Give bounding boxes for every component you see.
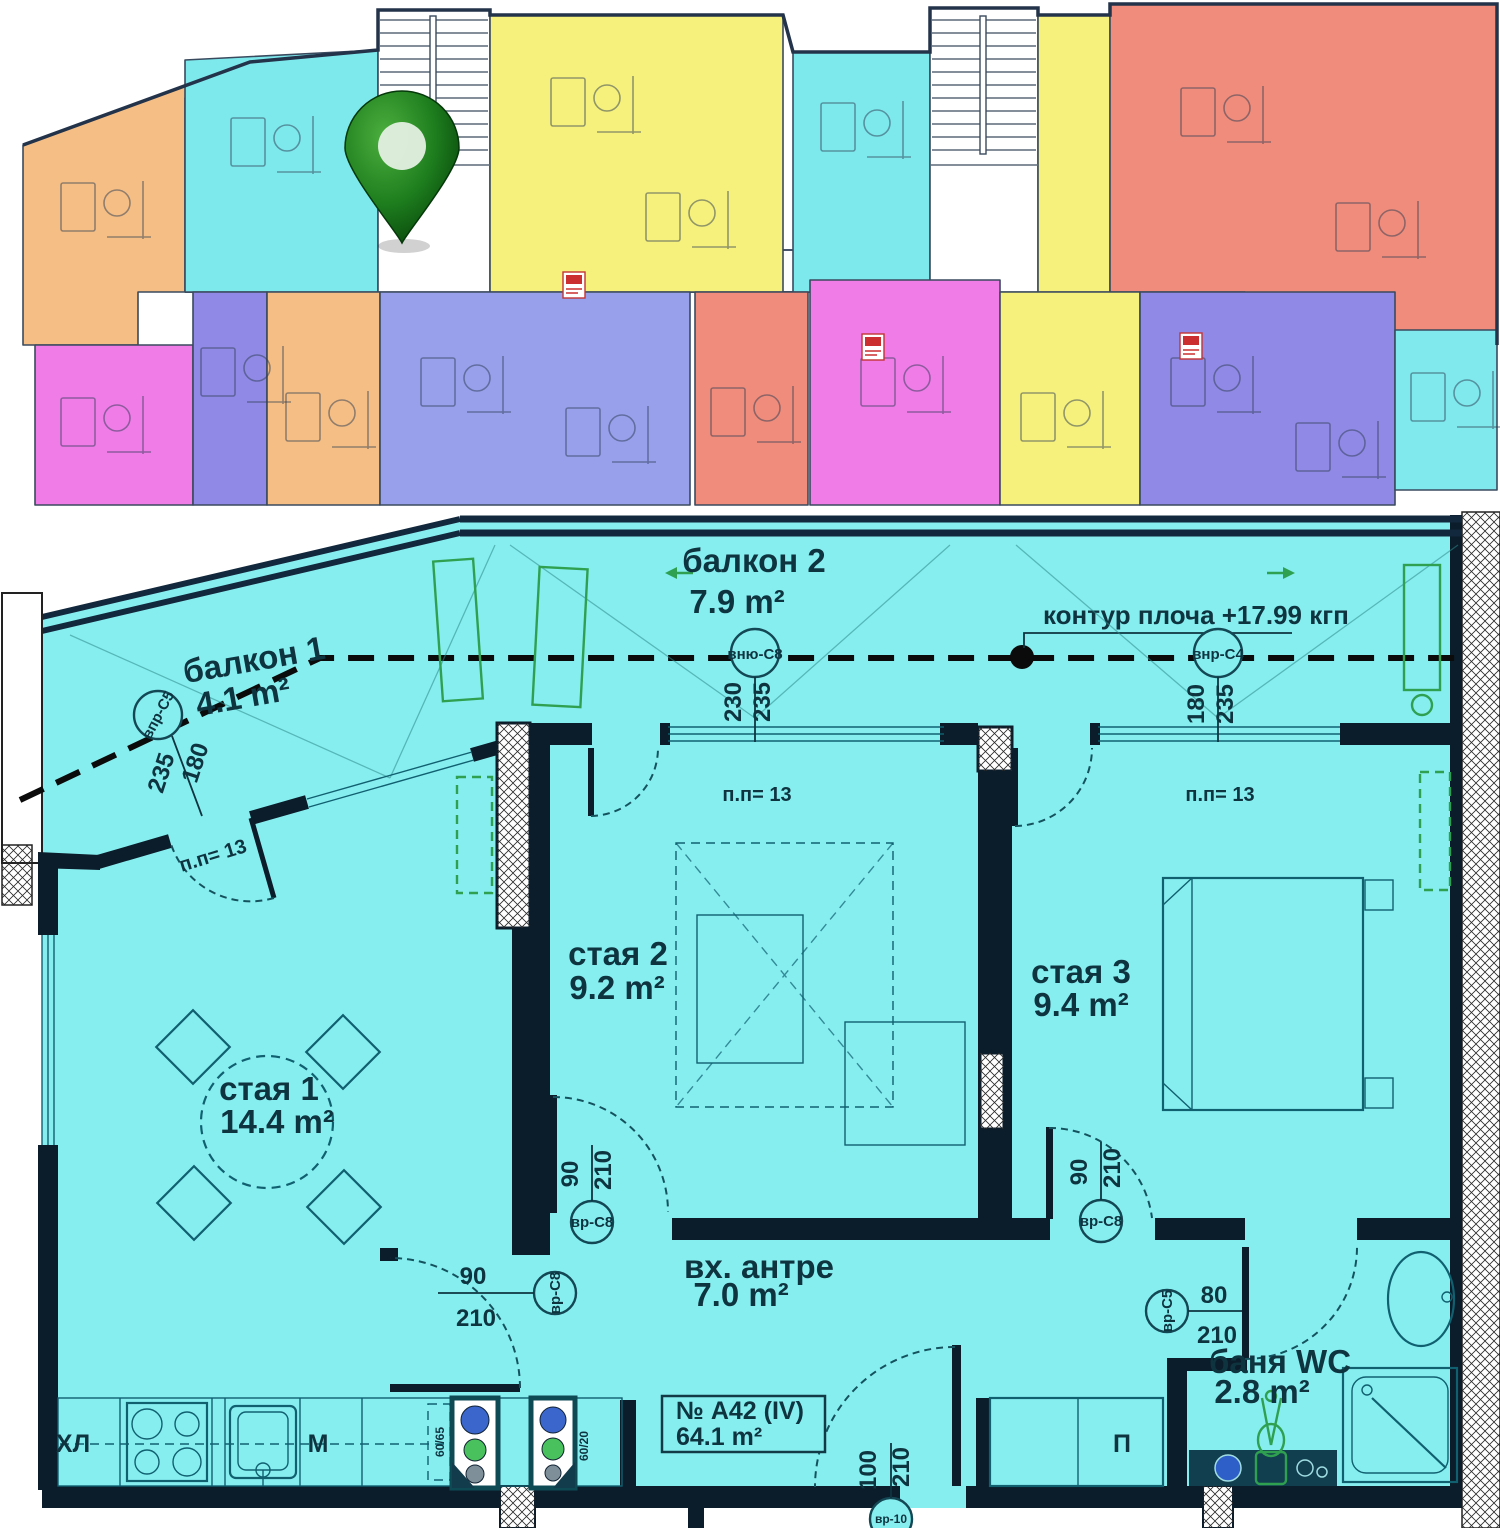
door-leaf — [1012, 748, 1018, 826]
svg-text:внр-С4: внр-С4 — [1192, 646, 1244, 663]
vanity-counter — [1189, 1450, 1337, 1486]
door-leaf — [588, 748, 594, 816]
entrance-door-leaf — [952, 1345, 961, 1486]
label-counter: М — [308, 1430, 329, 1458]
area-bath: 2.8 m² — [1214, 1373, 1309, 1410]
area-hall: 7.0 m² — [693, 1276, 788, 1313]
area-room1: 14.4 m² — [220, 1103, 334, 1140]
unit-orange-bottom — [267, 292, 380, 505]
label-balcony2: балкон 2 — [682, 542, 825, 579]
label-room2: стая 2 — [568, 935, 668, 972]
pp-note: п.п= 13 — [722, 784, 791, 806]
svg-text:90: 90 — [460, 1263, 487, 1290]
unit-cyan-right — [793, 52, 930, 292]
door-leaf — [1046, 1127, 1053, 1219]
apartment-number-box: № А42 (IV) 64.1 m² — [662, 1396, 825, 1452]
svg-text:вр-С5: вр-С5 — [1159, 1290, 1176, 1333]
svg-text:вр-С8: вр-С8 — [547, 1272, 564, 1315]
building-overview — [0, 0, 1500, 510]
shaft-size-note: 60/65 — [433, 1427, 447, 1457]
pp-note: п.п= 13 — [1185, 784, 1254, 806]
svg-text:вр-С8: вр-С8 — [1080, 1213, 1123, 1230]
svg-text:вр-10: вр-10 — [875, 1512, 907, 1526]
svg-text:210: 210 — [590, 1150, 617, 1190]
svg-text:100: 100 — [855, 1450, 882, 1490]
unit-yellow-top-right — [1038, 15, 1110, 292]
unit-magenta-bottom-left — [35, 345, 193, 505]
door-leaf — [550, 1095, 557, 1213]
shaft-size-note: 60/20 — [577, 1431, 591, 1461]
unit-yellow-top-left — [490, 15, 783, 292]
label-room1: стая 1 — [219, 1070, 319, 1107]
unit-cyan-pinned — [185, 50, 378, 292]
corridor-marker-2 — [862, 334, 884, 360]
apartment-plan: контур плоча +17.99 кгп — [0, 510, 1500, 1528]
slab-note: контур плоча +17.99 кгп — [1043, 600, 1349, 630]
unit-salmon-bottom — [695, 292, 808, 505]
svg-text:210: 210 — [888, 1447, 915, 1487]
svg-text:235: 235 — [1212, 684, 1239, 724]
unit-blue-bottom — [380, 292, 690, 505]
apartment-area: 64.1 m² — [676, 1423, 762, 1451]
label-room3: стая 3 — [1031, 953, 1131, 990]
unit-purple-bottom-1 — [193, 292, 267, 505]
corridor-marker-1 — [563, 272, 585, 298]
floorplan-screenshot: контур плоча +17.99 кгп — [0, 0, 1500, 1528]
washbasin-icon — [1215, 1455, 1241, 1481]
label-wardrobe: П — [1113, 1430, 1131, 1458]
unit-magenta-bottom-2 — [810, 280, 1000, 505]
apartment-number: № А42 (IV) — [676, 1397, 804, 1425]
svg-text:210: 210 — [1099, 1148, 1126, 1188]
area-room3: 9.4 m² — [1033, 986, 1128, 1023]
svg-text:180: 180 — [1183, 684, 1210, 724]
area-room2: 9.2 m² — [569, 969, 664, 1006]
door-leaf — [390, 1384, 520, 1392]
svg-text:235: 235 — [749, 682, 776, 722]
svg-text:90: 90 — [557, 1161, 584, 1188]
unit-purple-bottom-2 — [1140, 292, 1395, 505]
area-balcony2: 7.9 m² — [689, 583, 784, 620]
riser-shaft-1 — [452, 1398, 498, 1488]
svg-text:вню-С8: вню-С8 — [727, 646, 782, 663]
svg-text:230: 230 — [720, 682, 747, 722]
svg-text:210: 210 — [456, 1305, 496, 1332]
corridor-marker-3 — [1180, 333, 1202, 359]
svg-text:вр-С8: вр-С8 — [571, 1214, 614, 1231]
svg-text:90: 90 — [1066, 1159, 1093, 1186]
left-outer-wall — [2, 593, 42, 905]
riser-shaft-2 — [531, 1398, 575, 1488]
svg-text:80: 80 — [1201, 1282, 1228, 1309]
label-fridge: ХЛ — [56, 1430, 90, 1458]
